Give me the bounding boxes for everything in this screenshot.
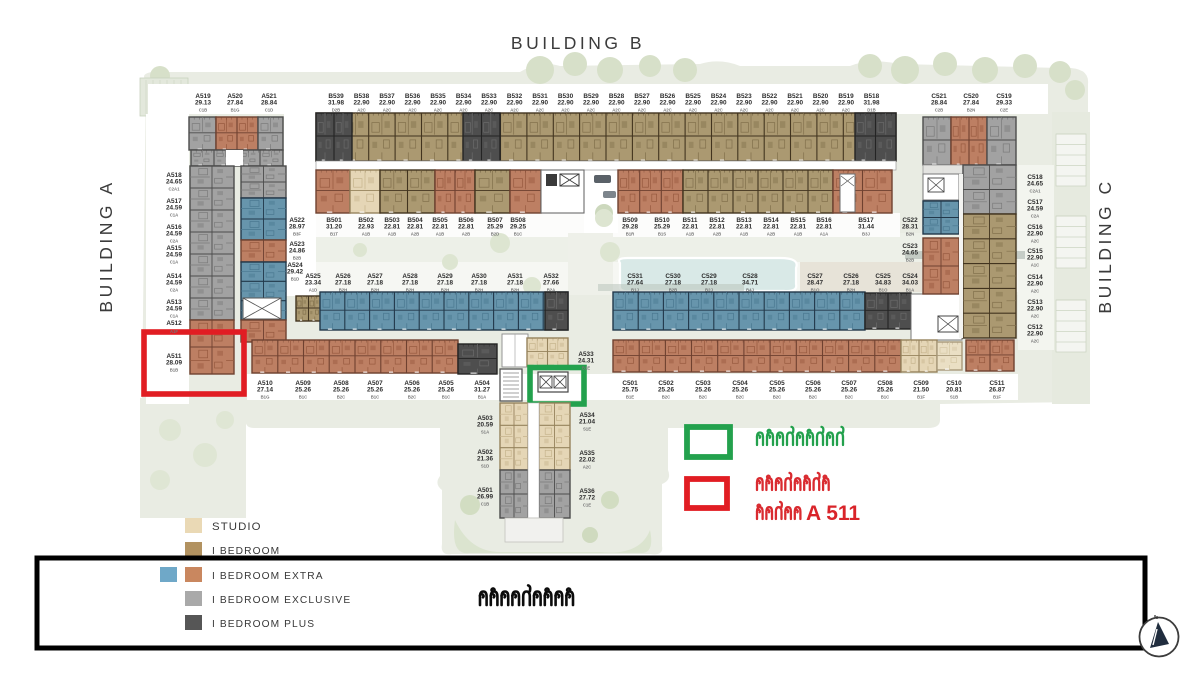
svg-text:BUILDING A: BUILDING A — [96, 179, 116, 312]
svg-text:BUILDING C: BUILDING C — [1095, 178, 1115, 313]
svg-text:I BEDROOM PLUS: I BEDROOM PLUS — [212, 619, 315, 630]
svg-text:I BEDROOM EXCLUSIVE: I BEDROOM EXCLUSIVE — [212, 595, 351, 606]
svg-text:BUILDING B: BUILDING B — [511, 33, 645, 53]
svg-text:I BEDROOM: I BEDROOM — [212, 546, 280, 557]
svg-text:STUDIO: STUDIO — [212, 521, 262, 533]
svg-text:I BEDROOM EXTRA: I BEDROOM EXTRA — [212, 571, 324, 582]
svg-text:A 511: A 511 — [806, 502, 860, 525]
